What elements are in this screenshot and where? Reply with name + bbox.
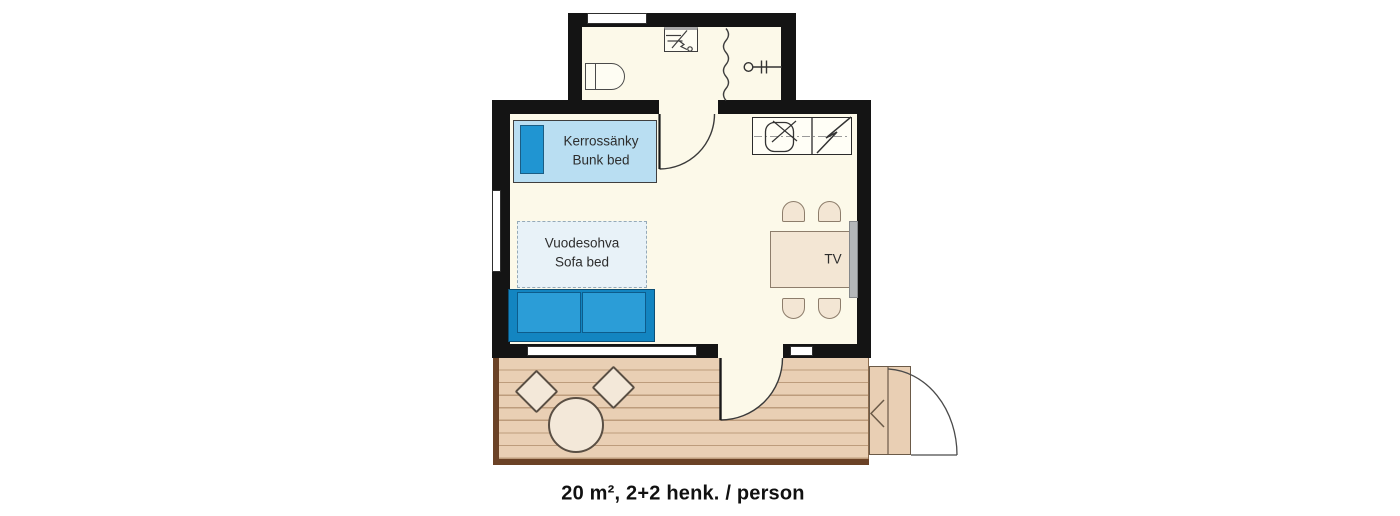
wall-main-top-left	[492, 100, 659, 114]
deck-border-left	[493, 358, 499, 465]
wall-bathroom-left	[568, 13, 582, 114]
window-left-wall	[492, 190, 501, 272]
sofa-bed-label-fi: Vuodesohva	[545, 236, 620, 250]
chair-top-left	[782, 201, 805, 222]
deck	[493, 358, 869, 465]
bunk-bed-label-en: Bunk bed	[572, 153, 629, 167]
toilet-bowl	[595, 63, 625, 90]
wall-main-top-right	[718, 100, 871, 114]
chair-top-right	[818, 201, 841, 222]
window-bottom-large	[527, 346, 697, 356]
tv-screen	[849, 221, 858, 298]
tv-label: TV	[824, 252, 841, 266]
sofa-cushion-left	[517, 292, 581, 333]
plan-caption: 20 m², 2+2 henk. / person	[561, 483, 804, 506]
sofa-cushion-right	[582, 292, 646, 333]
shower-drain-box	[664, 27, 698, 52]
entrance-ramp	[869, 366, 911, 455]
bunk-bed-pillow	[520, 125, 544, 174]
kitchen-unit	[752, 117, 852, 155]
bunk-bed-label-fi: Kerrossänky	[563, 134, 638, 148]
sofa-bed-label-en: Sofa bed	[555, 255, 609, 269]
wall-main-right	[857, 100, 871, 358]
wall-bathroom-right	[781, 13, 796, 114]
window-bottom-small	[790, 346, 813, 356]
deck-round-table	[548, 397, 604, 453]
deck-border-bottom	[493, 459, 869, 465]
window-bathroom-top	[587, 13, 647, 24]
floor-plan: Kerrossänky Bunk bed Vuodesohva Sofa bed…	[0, 0, 1400, 516]
